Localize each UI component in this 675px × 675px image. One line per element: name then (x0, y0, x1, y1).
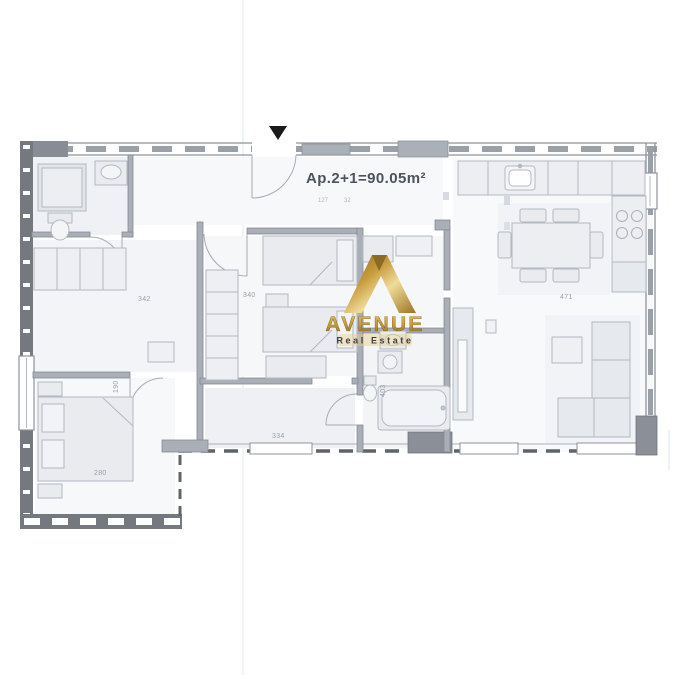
toilet-tank (364, 376, 376, 385)
chair (590, 232, 603, 258)
wall-hall-bedroom (197, 222, 203, 440)
pillow (42, 404, 64, 432)
toilet (364, 385, 377, 401)
logo-tagline-text: Real Estate (336, 336, 413, 346)
scan-mark (504, 222, 510, 230)
chair (520, 269, 546, 282)
wall-stub (435, 220, 450, 230)
dim-corridor: 334 (272, 433, 285, 440)
wall-living-left (444, 228, 450, 290)
dim-top-1: 127 (318, 198, 329, 204)
wardrobe (206, 270, 238, 380)
apartment-title: Ap.2+1=90.05m² (306, 170, 426, 187)
sofa-vertical (592, 322, 630, 437)
nightstand (38, 382, 62, 396)
shelf (396, 236, 432, 256)
entrance-marker (269, 126, 287, 140)
dim-bedroom-middle: 340 (243, 292, 256, 299)
pillow (42, 440, 64, 468)
hall-wardrobe (34, 248, 126, 290)
floor-plan-page: 342 340 471 280 334 190 403 127 32 Ap.2+… (0, 0, 675, 675)
sofa-horizontal (558, 398, 594, 437)
logo-brand-text: AVENUE (325, 313, 424, 336)
dining-table (512, 223, 590, 268)
wall-bottom-left (20, 514, 182, 529)
wall-segment (302, 144, 350, 155)
coffee-table (552, 337, 582, 363)
pillar (636, 416, 657, 455)
dresser (266, 356, 326, 378)
dim-hall: 342 (138, 296, 151, 303)
dim-top-2: 32 (344, 198, 351, 204)
chair (498, 232, 511, 258)
toilet (51, 220, 69, 240)
side-table (148, 342, 174, 362)
nightstand (38, 484, 62, 498)
wall-bedroom-top (247, 228, 357, 234)
dim-bedroom-left-width: 190 (113, 380, 120, 393)
chair (553, 209, 579, 222)
kitchen-counter (458, 161, 645, 195)
chair (520, 209, 546, 222)
floor-plan: 342 340 471 280 334 190 403 127 32 Ap.2+… (0, 0, 675, 675)
chair (553, 269, 579, 282)
scan-mark (504, 196, 510, 205)
wall-bathroom1 (128, 155, 133, 237)
window-sill (577, 443, 637, 454)
dim-bedroom-left: 280 (94, 470, 107, 477)
speaker (486, 320, 496, 333)
fridge (612, 262, 646, 292)
window-sill (460, 443, 518, 454)
wall-step (162, 440, 208, 452)
window-sill (250, 443, 312, 454)
dim-living: 471 (560, 294, 573, 301)
pillow (337, 240, 353, 281)
wall-segment (398, 141, 448, 157)
scan-mark (443, 192, 449, 200)
dim-bathroom-width: 403 (380, 384, 387, 397)
nightstand (266, 294, 288, 307)
wall-bedroom-left-top (33, 372, 130, 378)
